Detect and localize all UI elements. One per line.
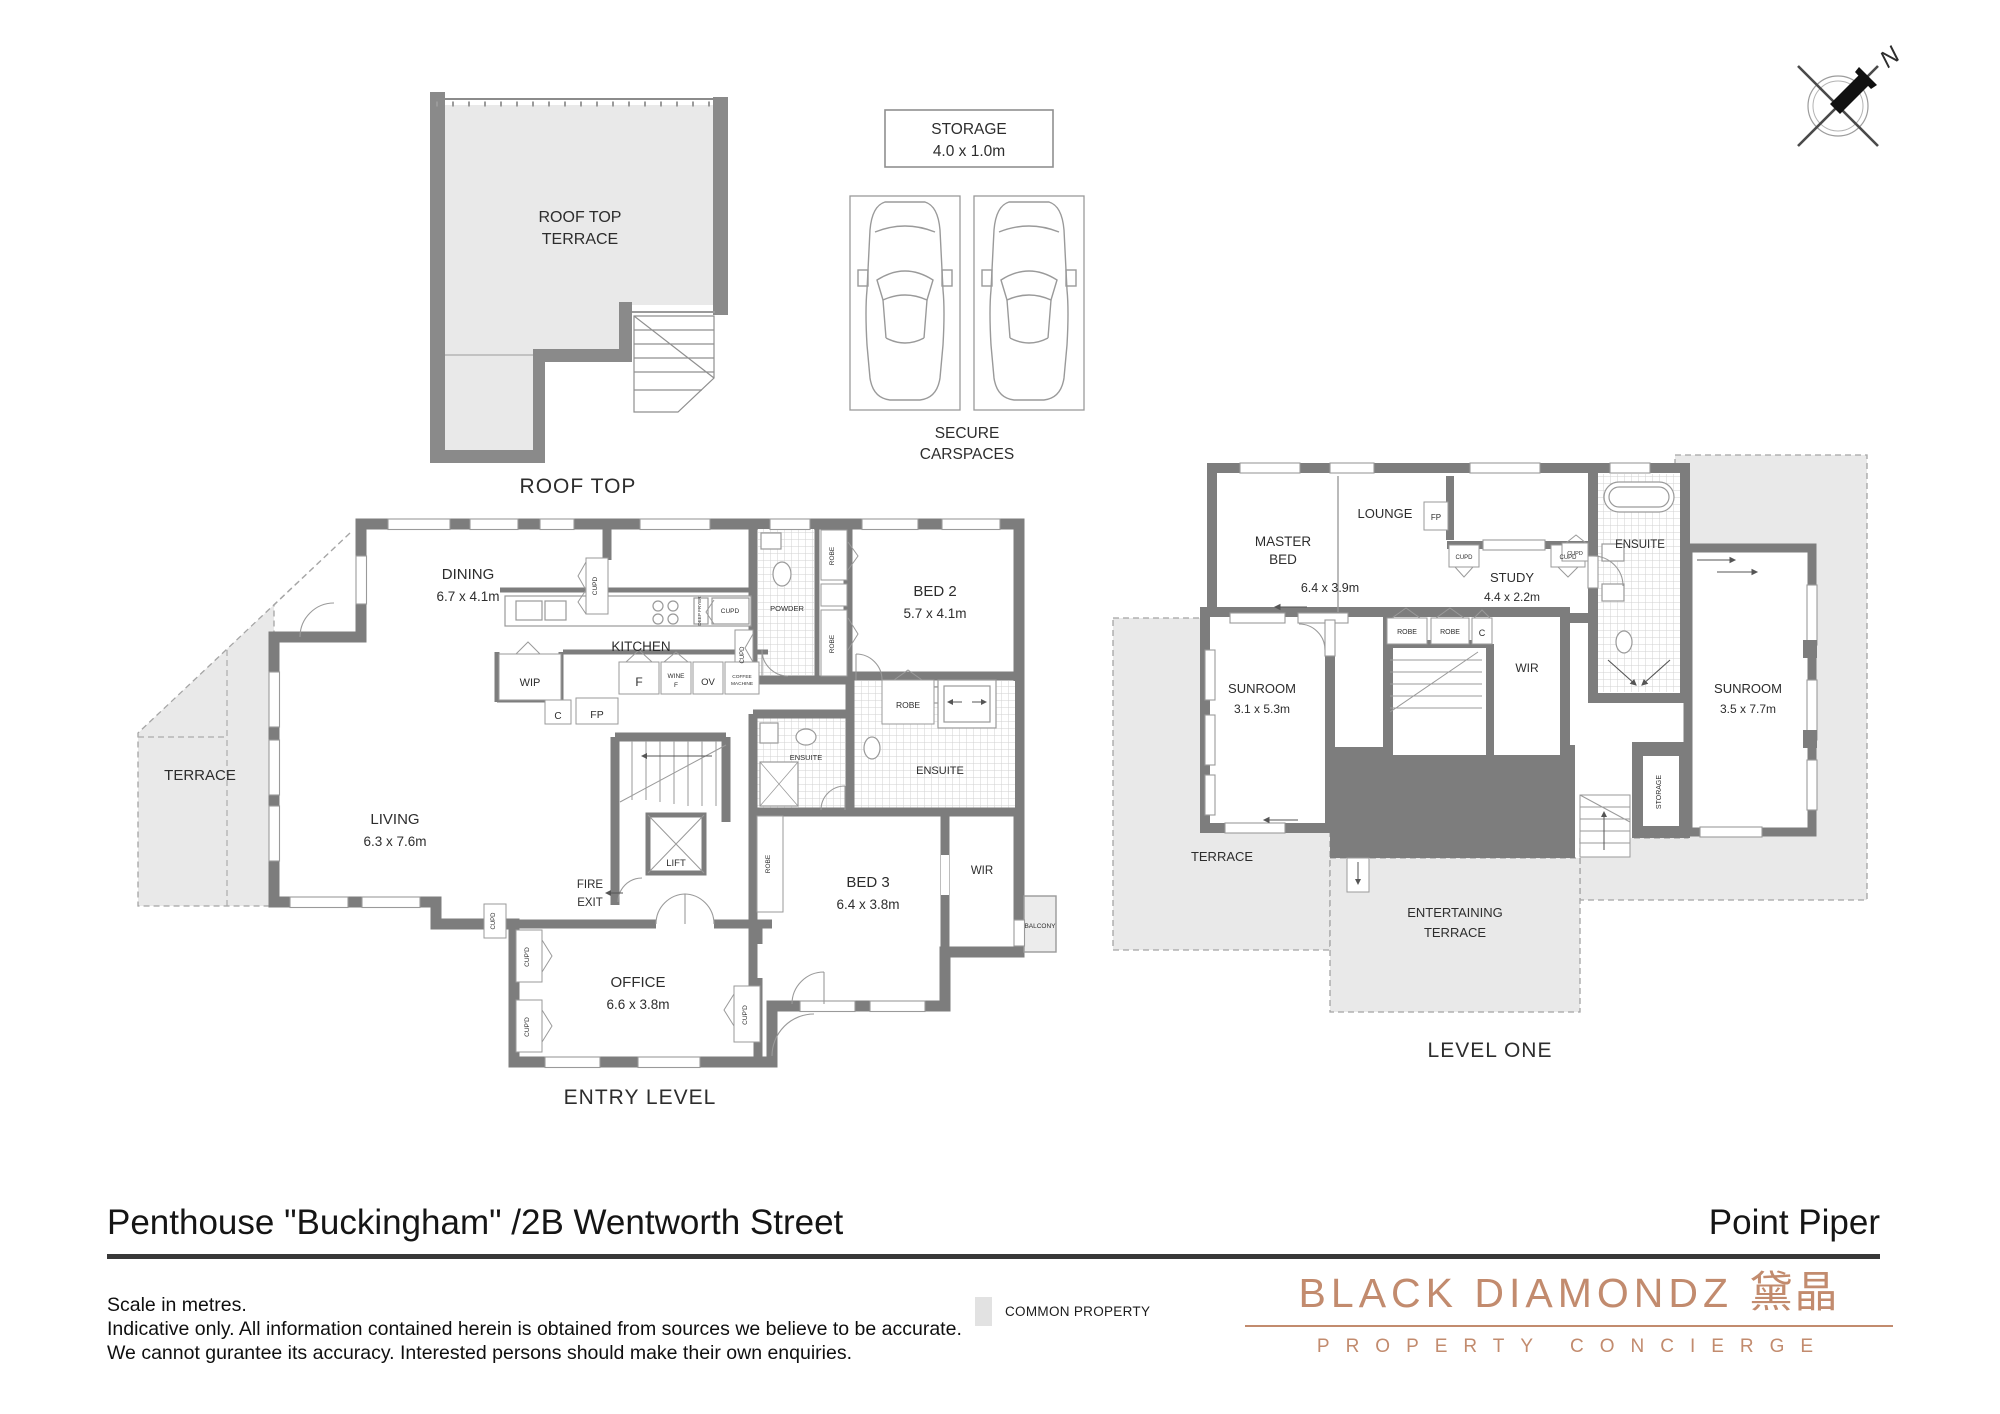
common-property-label: COMMON PROPERTY bbox=[1005, 1304, 1150, 1319]
wine-label1: WINE bbox=[668, 673, 686, 680]
roof-caption: ROOF TOP bbox=[520, 475, 637, 498]
l1-cupd1: CUPD bbox=[1455, 555, 1473, 561]
bed2-label: BED 2 bbox=[913, 583, 956, 600]
level-one-plan: MASTER BED 6.4 x 3.9m LOUNGE FP STUDY 4.… bbox=[1113, 455, 1867, 1062]
oven-label: OV bbox=[701, 677, 715, 688]
sunroom-large-label: SUNROOM bbox=[1714, 681, 1782, 696]
carspaces-caption2: CARSPACES bbox=[920, 446, 1014, 463]
level-one-caption: LEVEL ONE bbox=[1428, 1039, 1553, 1062]
fire-exit-label2: EXIT bbox=[577, 897, 603, 909]
cupd-office1: CUP'D bbox=[524, 947, 531, 967]
robe-bed2: ROBE bbox=[896, 700, 920, 710]
brand-name-cjk: 黛晶 bbox=[1749, 1269, 1839, 1317]
living-label: LIVING bbox=[370, 811, 419, 828]
l1-c-label: C bbox=[1479, 628, 1486, 638]
carspaces-caption1: SECURE bbox=[935, 425, 1000, 442]
garage-plan: STORAGE 4.0 x 1.0m SECURE CARSPACES bbox=[850, 110, 1084, 463]
wine-label2: F bbox=[674, 682, 678, 689]
fp-label: FP bbox=[590, 709, 603, 721]
roof-top-plan: ROOF TOP TERRACE ROOF TOP bbox=[430, 92, 728, 498]
floorplan-canvas: ROOF TOP TERRACE ROOF TOP STORAGE 4.0 x … bbox=[0, 0, 2000, 1414]
brand-name-latin: BLACK DIAMONDZ bbox=[1299, 1270, 1734, 1316]
brand-rule bbox=[1245, 1325, 1893, 1327]
kitchen-label: KITCHEN bbox=[611, 639, 670, 654]
title-row: Penthouse "Buckingham" /2B Wentworth Str… bbox=[107, 1203, 1880, 1243]
dining-dims: 6.7 x 4.1m bbox=[436, 589, 499, 604]
roof-stairs bbox=[634, 316, 714, 412]
roof-terrace-label: ROOF TOP bbox=[539, 209, 622, 226]
lift-label: LIFT bbox=[666, 858, 686, 869]
l1-storage-label: STORAGE bbox=[1656, 775, 1663, 809]
dining-label: DINING bbox=[442, 566, 495, 583]
fire-exit-label1: FIRE bbox=[577, 879, 604, 891]
office-label: OFFICE bbox=[611, 974, 666, 991]
robe-powder2: ROBE bbox=[829, 634, 836, 653]
sunroom-small-label: SUNROOM bbox=[1228, 681, 1296, 696]
wir-label: WIR bbox=[971, 865, 993, 877]
master-label1: MASTER bbox=[1255, 534, 1312, 549]
bed2-dims: 5.7 x 4.1m bbox=[903, 606, 966, 621]
lounge-label: LOUNGE bbox=[1358, 506, 1413, 521]
study-label: STUDY bbox=[1490, 570, 1534, 585]
balcony-label: BALCONY bbox=[1024, 923, 1056, 930]
wip-label: WIP bbox=[520, 677, 541, 689]
common-property-legend: COMMON PROPERTY bbox=[975, 1297, 1150, 1326]
sunroom-large-dims: 3.5 x 7.7m bbox=[1720, 702, 1776, 716]
brand-tagline: PROPERTY CONCIERGE bbox=[1253, 1336, 1893, 1358]
l1-wir-label: WIR bbox=[1515, 661, 1539, 675]
l1-ensuite-label: ENSUITE bbox=[1615, 539, 1665, 551]
cupd-kitchen2: CUPD bbox=[740, 646, 746, 664]
sunroom-small-dims: 3.1 x 5.3m bbox=[1234, 702, 1290, 716]
cupd-office2: CUP'D bbox=[524, 1017, 531, 1037]
page-title: Penthouse "Buckingham" /2B Wentworth Str… bbox=[107, 1203, 843, 1243]
suburb-label: Point Piper bbox=[1709, 1203, 1880, 1243]
entertaining-label2: TERRACE bbox=[1424, 925, 1486, 940]
master-label2: BED bbox=[1269, 552, 1297, 567]
bed3-dims: 6.4 x 3.8m bbox=[836, 897, 899, 912]
ensuite-bed2-label: ENSUITE bbox=[916, 765, 964, 777]
coffee-label1: COFFEE bbox=[732, 674, 751, 680]
brand-logo: BLACK DIAMONDZ 黛晶 PROPERTY CONCIERGE bbox=[1245, 1258, 1893, 1358]
office-dims: 6.6 x 3.8m bbox=[606, 997, 669, 1012]
study-dims: 4.4 x 2.2m bbox=[1484, 590, 1540, 604]
coffee-label2: MACHINE bbox=[731, 681, 753, 687]
cupd-dining: CUPD bbox=[592, 576, 599, 595]
roof-terrace-label2: TERRACE bbox=[542, 231, 618, 248]
powder-label: POWDER bbox=[770, 604, 804, 613]
bed3-label: BED 3 bbox=[846, 874, 889, 891]
compass-icon: N bbox=[1798, 41, 1906, 146]
c-label: C bbox=[554, 711, 561, 722]
l1-terrace-label: TERRACE bbox=[1191, 849, 1253, 864]
fridge-label: F bbox=[635, 675, 642, 689]
ensuite-bed3-label: ENSUITE bbox=[790, 753, 823, 762]
storage-box-label: STORAGE bbox=[931, 121, 1007, 138]
entry-terrace-label: TERRACE bbox=[164, 767, 236, 784]
cupd-office3: CUP'D bbox=[742, 1005, 749, 1025]
l1-robe2: ROBE bbox=[1440, 629, 1460, 636]
entertaining-label1: ENTERTAINING bbox=[1407, 905, 1503, 920]
cupd-kitchen: CUPD bbox=[721, 608, 740, 615]
living-dims: 6.3 x 7.6m bbox=[363, 834, 426, 849]
cupd-hall: CUPD bbox=[491, 912, 497, 930]
robe-bed3: ROBE bbox=[765, 854, 772, 873]
entry-level-caption: ENTRY LEVEL bbox=[564, 1086, 717, 1109]
l1-robe1: ROBE bbox=[1397, 629, 1417, 636]
brand-name: BLACK DIAMONDZ 黛晶 bbox=[1245, 1258, 1893, 1320]
storage-box-dims: 4.0 x 1.0m bbox=[933, 143, 1005, 160]
l1-cupd3: CUPD bbox=[1567, 551, 1583, 557]
robe-powder1: ROBE bbox=[829, 546, 836, 565]
common-property-swatch bbox=[975, 1297, 992, 1326]
master-dims: 6.4 x 3.9m bbox=[1301, 581, 1359, 595]
compass-north-label: N bbox=[1875, 41, 1906, 73]
l1-fp-label: FP bbox=[1431, 513, 1441, 522]
deep-fryer-label: DEEP FRYER bbox=[697, 596, 702, 626]
entry-level-plan: TERRACE BALCONY bbox=[138, 519, 1056, 1109]
